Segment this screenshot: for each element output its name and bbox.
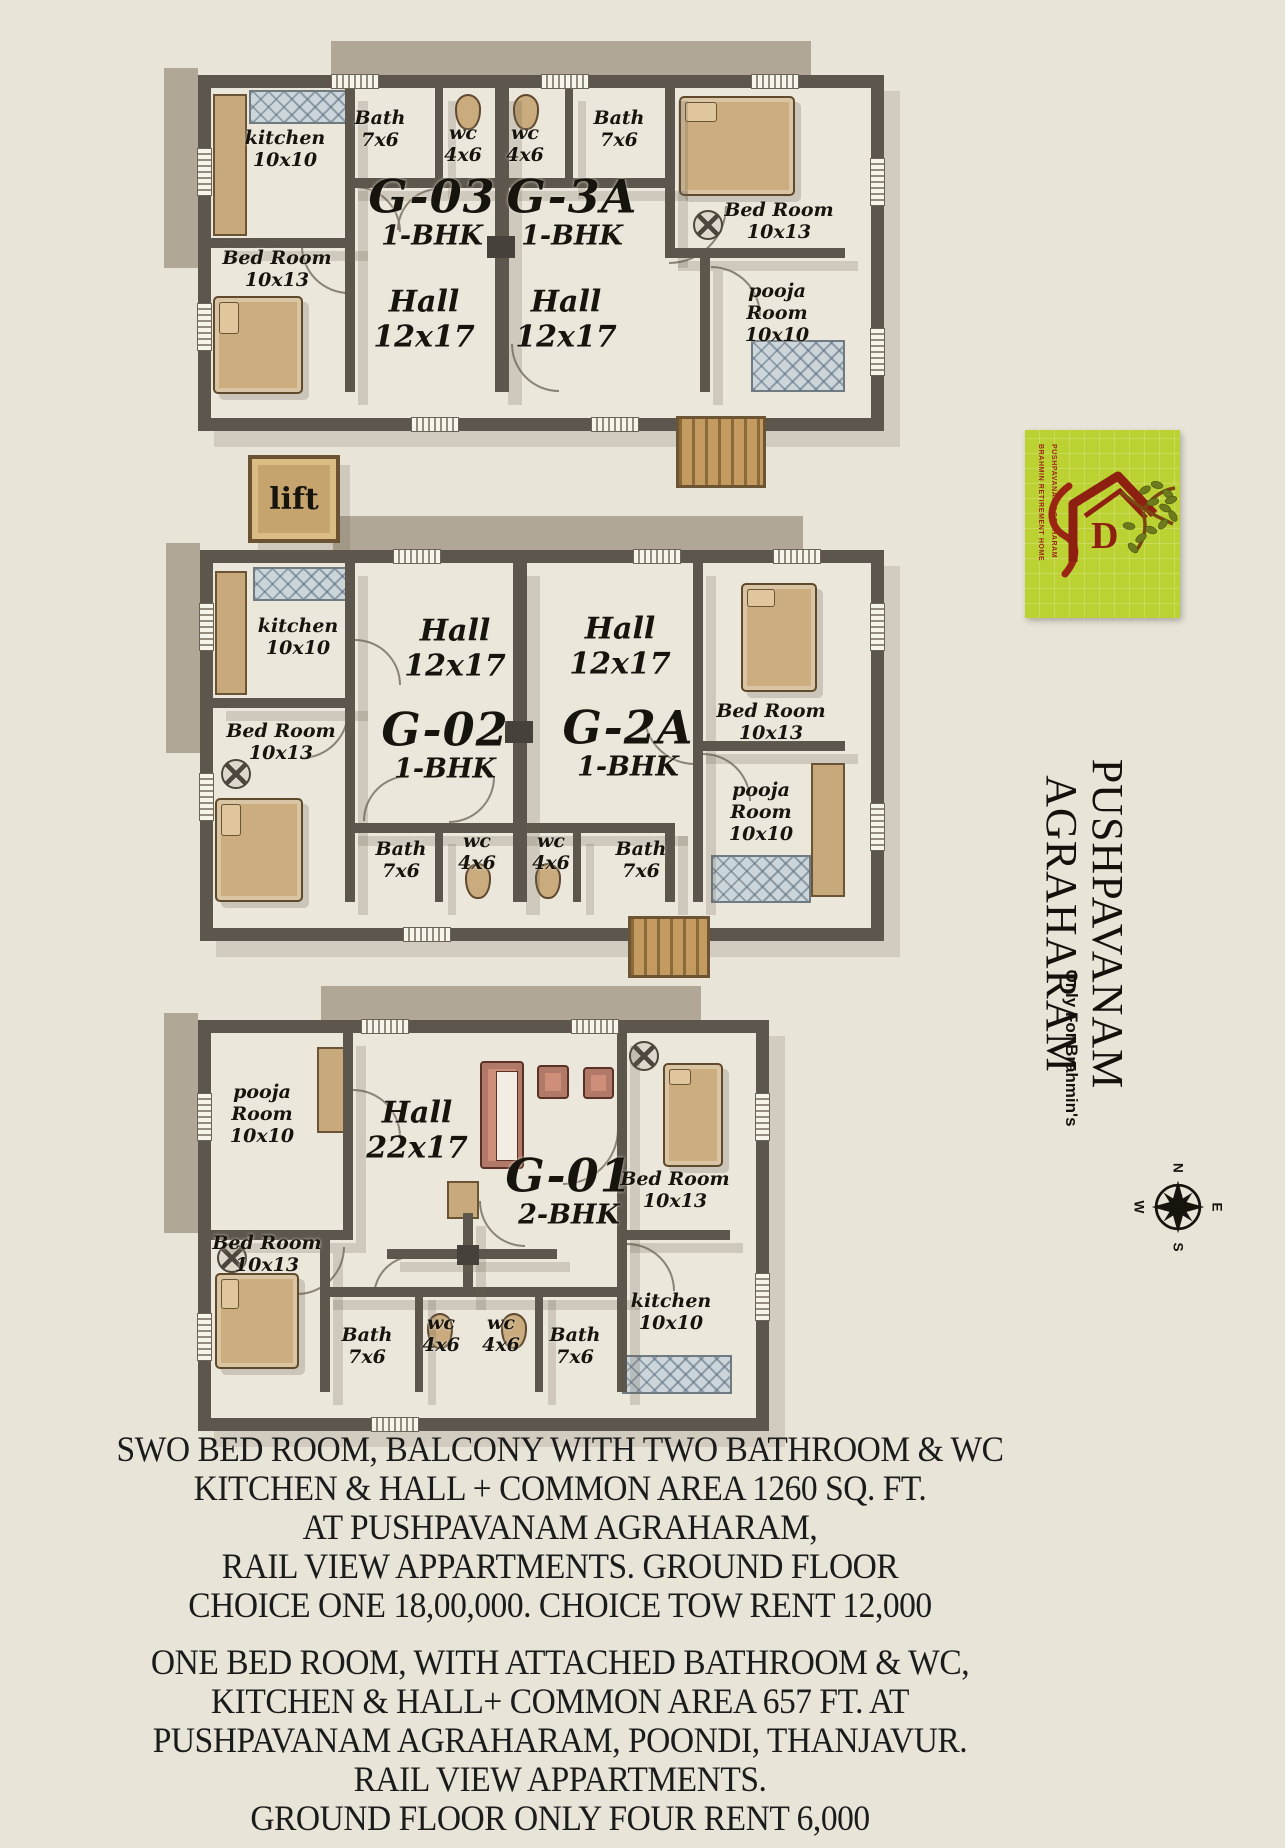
room-dims: 12x17 xyxy=(373,320,474,355)
wall-block xyxy=(457,1245,479,1265)
chair xyxy=(583,1067,614,1099)
unit-type: 1-BHK xyxy=(381,754,508,785)
label-unit-g2a: G-2A 1-BHK xyxy=(563,703,694,782)
window xyxy=(403,927,451,942)
room-name: Bed Room xyxy=(713,701,829,723)
kitchen-counter xyxy=(622,1355,732,1394)
room-name: Bath xyxy=(550,1325,601,1347)
window xyxy=(541,74,589,89)
pillow xyxy=(221,804,241,836)
compass-e: E xyxy=(1210,1202,1225,1211)
label-hall: Hall 12x17 xyxy=(569,613,670,682)
room-dims: 10x10 xyxy=(715,824,807,846)
footer-paragraph-1: SWO BED ROOM, BALCONY WITH TWO BATHROOM … xyxy=(58,1430,1062,1625)
footer-line: PUSHPAVANAM AGRAHARAM, POONDI, THANJAVUR… xyxy=(58,1721,1062,1760)
label-bedroom: Bed Room 10x13 xyxy=(209,1233,325,1277)
room-name: kitchen xyxy=(258,616,338,638)
balcony-mat xyxy=(711,855,811,903)
label-bedroom: Bed Room 10x13 xyxy=(617,1169,733,1213)
room-name: Bath xyxy=(594,108,645,130)
room-dims: 4x6 xyxy=(444,145,482,167)
footer-line: RAIL VIEW APPARTMENTS. xyxy=(58,1760,1062,1799)
chair xyxy=(537,1065,569,1099)
footer-line: GROUND FLOOR ONLY FOUR RENT 6,000 xyxy=(58,1799,1062,1838)
label-kitchen: kitchen 10x10 xyxy=(245,128,325,172)
room-dims: 10x13 xyxy=(617,1191,733,1213)
wall xyxy=(665,248,845,258)
room-dims: 10x13 xyxy=(219,270,335,292)
room-dims: 12x17 xyxy=(569,647,670,682)
footer-line: RAIL VIEW APPARTMENTS. GROUND FLOOR xyxy=(58,1547,1062,1586)
wall xyxy=(665,88,675,255)
compass-w: W xyxy=(1131,1201,1146,1214)
room-dims: 10x10 xyxy=(258,638,338,660)
bed xyxy=(213,296,303,394)
room-dims: 7x6 xyxy=(616,861,667,883)
poster-subtitle: Only For Brahmin's xyxy=(1060,962,1082,1134)
room-name: wc xyxy=(506,123,544,145)
footer-line: ONE BED ROOM, WITH ATTACHED BATHROOM & W… xyxy=(58,1643,1062,1682)
roof-slab xyxy=(166,543,200,753)
label-hall: Hall 22x17 xyxy=(366,1097,467,1166)
label-unit-g3a: G-3A 1-BHK xyxy=(507,172,638,251)
label-unit-g01: G-01 2-BHK xyxy=(505,1151,632,1230)
unit-type: 1-BHK xyxy=(507,221,638,252)
label-bath: Bath 7x6 xyxy=(616,839,667,883)
wall xyxy=(535,1287,543,1392)
wall xyxy=(435,831,443,902)
window xyxy=(331,74,379,89)
window xyxy=(751,74,799,89)
window xyxy=(197,1093,212,1141)
label-wc: wc 4x6 xyxy=(458,831,496,875)
door-arc xyxy=(627,1243,675,1291)
balcony-mat xyxy=(751,340,845,392)
room-dims: 7x6 xyxy=(376,861,427,883)
label-kitchen: kitchen 10x10 xyxy=(631,1291,711,1335)
staircase xyxy=(628,916,710,978)
kitchen-platform xyxy=(215,571,247,695)
wall xyxy=(320,1287,627,1297)
wall xyxy=(617,1230,730,1240)
window xyxy=(197,148,212,196)
room-name: kitchen xyxy=(245,128,325,150)
label-bedroom: Bed Room 10x13 xyxy=(219,248,335,292)
bed xyxy=(741,583,817,692)
compass-n: N xyxy=(1170,1163,1185,1173)
room-dims: 7x6 xyxy=(594,130,645,152)
room-name: kitchen xyxy=(631,1291,711,1313)
staircase xyxy=(676,416,766,488)
pooja-altar xyxy=(317,1047,345,1133)
label-unit-g03: G-03 1-BHK xyxy=(368,172,495,251)
footer-line: SWO BED ROOM, BALCONY WITH TWO BATHROOM … xyxy=(58,1430,1062,1469)
room-name: Hall xyxy=(366,1097,467,1132)
label-pooja: pooja Room 10x10 xyxy=(731,281,823,347)
room-name: wc xyxy=(458,831,496,853)
window xyxy=(870,328,885,376)
label-wc: wc 4x6 xyxy=(506,123,544,167)
kitchen-counter xyxy=(253,567,349,601)
wall-block xyxy=(505,721,533,743)
compass-s: S xyxy=(1170,1242,1185,1251)
window xyxy=(773,549,821,564)
wall xyxy=(665,823,675,902)
label-wc: wc 4x6 xyxy=(422,1313,460,1357)
room-dims: 4x6 xyxy=(422,1335,460,1357)
room-name: Bed Room xyxy=(219,248,335,270)
bed xyxy=(215,1273,299,1369)
room-name: Bed Room xyxy=(617,1169,733,1191)
window xyxy=(591,417,639,432)
unit-name: G-3A xyxy=(507,172,638,220)
room-dims: 4x6 xyxy=(506,145,544,167)
footer-line: KITCHEN & HALL + COMMON AREA 1260 SQ. FT… xyxy=(58,1469,1062,1508)
floor-plan-top: kitchen 10x10 Bath 7x6 wc 4x6 wc 4x6 Bat… xyxy=(198,75,884,431)
room-name: Bath xyxy=(616,839,667,861)
wall xyxy=(345,823,675,833)
wall xyxy=(345,563,355,902)
pillow xyxy=(219,302,239,334)
footer-line: AT PUSHPAVANAM AGRAHARAM, xyxy=(58,1508,1062,1547)
pillow xyxy=(221,1279,239,1309)
ceiling-fan-icon xyxy=(693,210,723,240)
room-name: Bed Room xyxy=(223,721,339,743)
pillow xyxy=(685,102,717,122)
label-bedroom: Bed Room 10x13 xyxy=(223,721,339,765)
room-dims: 10x10 xyxy=(216,1126,308,1148)
window xyxy=(411,417,459,432)
floor-plan-bottom: pooja Room 10x10 Hall 22x17 G-01 2-BHK B… xyxy=(198,1020,769,1431)
roof-slab xyxy=(321,986,701,1020)
label-hall: Hall 12x17 xyxy=(373,286,474,355)
label-bath: Bath 7x6 xyxy=(594,108,645,152)
pillow xyxy=(747,589,775,607)
room-dims: 7x6 xyxy=(355,130,406,152)
window xyxy=(755,1273,770,1321)
floor-plan-middle: kitchen 10x10 Hall 12x17 Hall 12x17 G-02… xyxy=(200,550,884,941)
compass-icon: N E S W xyxy=(1128,1157,1228,1257)
room-name: wc xyxy=(532,831,570,853)
poster-title: PUSHPAVANAM AGRAHARAM xyxy=(1084,646,1130,1202)
window xyxy=(633,549,681,564)
wall xyxy=(573,831,581,902)
label-bath: Bath 7x6 xyxy=(376,839,427,883)
room-dims: 10x13 xyxy=(223,743,339,765)
window xyxy=(571,1019,619,1034)
room-dims: 22x17 xyxy=(366,1131,467,1166)
window xyxy=(870,803,885,851)
compass-rose xyxy=(1152,1181,1205,1234)
room-name: wc xyxy=(444,123,482,145)
room-name: Bath xyxy=(342,1325,393,1347)
room-name: Hall xyxy=(404,615,505,650)
logo: BRAHMIN RETIREMENT HOME PUSHPAVANAM AGRA… xyxy=(1025,430,1180,618)
room-dims: 10x13 xyxy=(209,1255,325,1277)
label-wc: wc 4x6 xyxy=(444,123,482,167)
label-pooja: pooja Room 10x10 xyxy=(216,1082,308,1148)
room-name: Bath xyxy=(376,839,427,861)
window xyxy=(755,1093,770,1141)
bed xyxy=(663,1063,723,1167)
label-bedroom: Bed Room 10x13 xyxy=(713,701,829,745)
room-name: Bed Room xyxy=(721,200,837,222)
label-unit-g02: G-02 1-BHK xyxy=(381,705,508,784)
label-bedroom: Bed Room 10x13 xyxy=(721,200,837,244)
room-dims: 4x6 xyxy=(532,853,570,875)
footer-line: CHOICE ONE 18,00,000. CHOICE TOW RENT 12… xyxy=(58,1586,1062,1625)
room-dims: 7x6 xyxy=(342,1347,393,1369)
room-dims: 10x10 xyxy=(245,150,325,172)
unit-name: G-02 xyxy=(381,705,508,753)
floor-plan-poster: kitchen 10x10 Bath 7x6 wc 4x6 wc 4x6 Bat… xyxy=(0,0,1285,1848)
room-dims: 4x6 xyxy=(458,853,496,875)
room-dims: 7x6 xyxy=(550,1347,601,1369)
label-hall: Hall 12x17 xyxy=(404,615,505,684)
label-kitchen: kitchen 10x10 xyxy=(258,616,338,660)
roof-slab xyxy=(333,516,803,550)
room-dims: 12x17 xyxy=(404,649,505,684)
pooja-cabinet xyxy=(811,763,845,897)
window xyxy=(199,603,214,651)
unit-name: G-03 xyxy=(368,172,495,220)
room-name: wc xyxy=(482,1313,520,1335)
ceiling-fan-icon xyxy=(629,1041,659,1071)
wall xyxy=(700,258,710,392)
label-bath: Bath 7x6 xyxy=(355,108,406,152)
logo-art: D xyxy=(1025,430,1180,618)
footer-paragraph-2: ONE BED ROOM, WITH ATTACHED BATHROOM & W… xyxy=(58,1643,1062,1838)
bed xyxy=(679,96,795,196)
room-name: Hall xyxy=(515,286,616,321)
unit-type: 1-BHK xyxy=(368,221,495,252)
room-name: Bed Room xyxy=(209,1233,325,1255)
wall xyxy=(693,563,703,902)
label-pooja: pooja Room 10x10 xyxy=(715,780,807,846)
lift-label: lift xyxy=(269,482,319,517)
kitchen-counter xyxy=(249,90,347,124)
room-name: pooja Room xyxy=(715,780,807,824)
room-name: wc xyxy=(422,1313,460,1335)
unit-name: G-2A xyxy=(563,703,694,751)
unit-type: 1-BHK xyxy=(563,752,694,783)
window xyxy=(870,603,885,651)
roof-slab xyxy=(331,41,811,75)
room-name: Hall xyxy=(373,286,474,321)
roof-slab xyxy=(164,1013,198,1233)
roof-slab xyxy=(164,68,198,268)
unit-type: 2-BHK xyxy=(505,1200,632,1231)
label-wc: wc 4x6 xyxy=(532,831,570,875)
room-dims: 10x10 xyxy=(731,325,823,347)
label-wc: wc 4x6 xyxy=(482,1313,520,1357)
unit-name: G-01 xyxy=(505,1151,632,1199)
pillow xyxy=(669,1069,691,1085)
window xyxy=(393,549,441,564)
label-bath: Bath 7x6 xyxy=(342,1325,393,1369)
window xyxy=(197,303,212,351)
wall xyxy=(213,698,355,708)
window xyxy=(361,1019,409,1034)
label-bath: Bath 7x6 xyxy=(550,1325,601,1369)
wall xyxy=(343,1033,353,1230)
window xyxy=(199,773,214,821)
bed xyxy=(215,798,303,902)
room-dims: 10x13 xyxy=(721,222,837,244)
room-dims: 12x17 xyxy=(515,320,616,355)
lift: lift xyxy=(248,455,340,543)
room-name: Bath xyxy=(355,108,406,130)
door-arc xyxy=(355,639,401,685)
window xyxy=(870,158,885,206)
room-name: pooja Room xyxy=(731,281,823,325)
room-dims: 10x10 xyxy=(631,1313,711,1335)
logo-monogram: D xyxy=(1091,515,1118,557)
room-name: pooja Room xyxy=(216,1082,308,1126)
window xyxy=(197,1313,212,1361)
footer-line: KITCHEN & HALL+ COMMON AREA 657 FT. AT xyxy=(58,1682,1062,1721)
label-hall: Hall 12x17 xyxy=(515,286,616,355)
room-dims: 10x13 xyxy=(713,723,829,745)
kitchen-platform xyxy=(213,94,247,236)
room-name: Hall xyxy=(569,613,670,648)
room-dims: 4x6 xyxy=(482,1335,520,1357)
